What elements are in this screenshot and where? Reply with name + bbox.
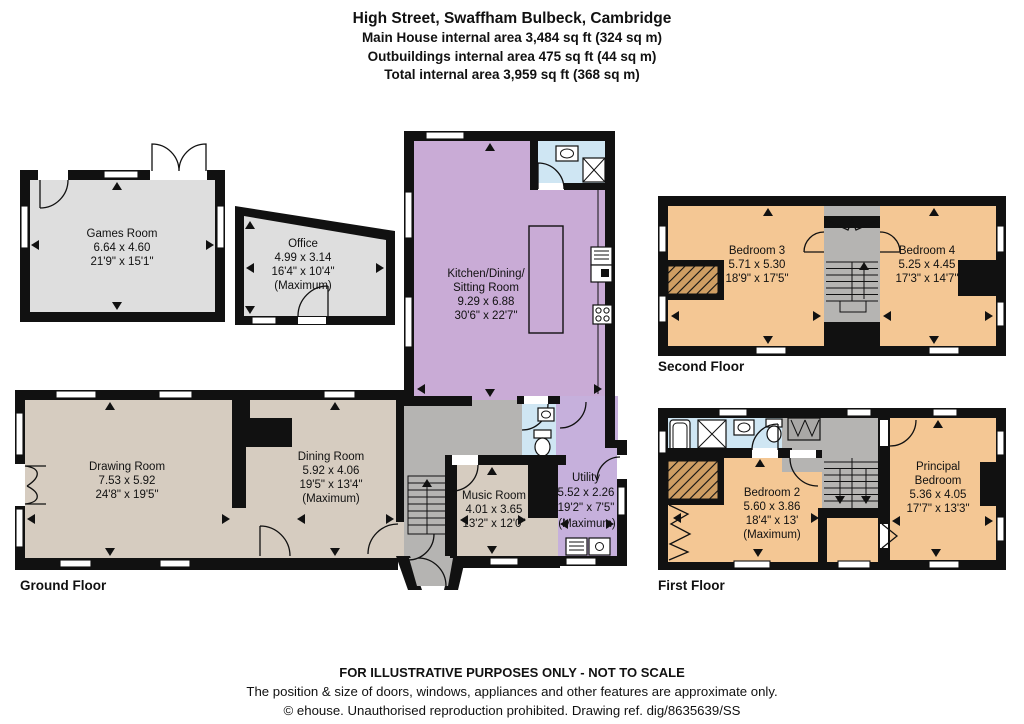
kitchen-metric: 9.29 x 6.88 [458,296,515,308]
double-door-arc [152,144,206,171]
floorplan-page: High Street, Swaffham Bulbeck, Cambridge… [0,0,1024,724]
bedroom2-note: (Maximum) [743,529,801,541]
drawing-room-label: Drawing Room [89,461,165,473]
copyright-text: © ehouse. Unauthorised reproduction proh… [0,701,1024,720]
music-room-label: Music Room [462,490,526,502]
principal-label-2: Bedroom [915,475,962,487]
sink-icon [538,408,554,421]
hob-icon [593,305,612,324]
office-imperial: 16'4" x 10'4" [271,266,334,278]
office-metric: 4.99 x 3.14 [275,252,333,264]
disclaimer-title: FOR ILLUSTRATIVE PURPOSES ONLY - NOT TO … [0,663,1024,682]
kitchen-imperial: 30'6" x 22'7" [454,310,517,322]
toilet-icon [766,419,782,442]
dining-room-note: (Maximum) [302,493,360,505]
bedroom3-metric: 5.71 x 5.30 [729,259,786,271]
office-label: Office [288,238,318,250]
utility-label: Utility [572,472,600,484]
dining-room-metric: 5.92 x 4.06 [303,465,360,477]
games-room-imperial: 21'9" x 15'1" [90,256,153,268]
games-room-metric: 6.64 x 4.60 [94,242,151,254]
principal-imperial: 17'7" x 13'3" [906,503,969,515]
bedroom3-label: Bedroom 3 [729,245,785,257]
wardrobe-icon [788,418,820,440]
bedroom3-imperial: 18'9" x 17'5" [725,273,788,285]
music-room-metric: 4.01 x 3.65 [466,504,523,516]
games-room-label: Games Room [87,228,158,240]
drawing-room-imperial: 24'8" x 19'5" [95,489,158,501]
sink-icon [734,420,754,435]
kitchen-label-1: Kitchen/Dining/ [447,268,525,280]
second-floor-label: Second Floor [658,359,745,374]
ground-floor-label: Ground Floor [20,578,107,593]
office-note: (Maximum) [274,280,332,292]
oven-icon [591,247,612,282]
shower-icon [698,420,726,448]
bedroom4-metric: 5.25 x 4.45 [899,259,956,271]
shower-icon [583,158,605,182]
footer-block: FOR ILLUSTRATIVE PURPOSES ONLY - NOT TO … [0,663,1024,720]
dining-room-imperial: 19'5" x 13'4" [299,479,362,491]
music-room-imperial: 13'2" x 12'0" [462,518,525,530]
ground-floor-center: Music Room 4.01 x 3.65 13'2" x 12'0" Uti… [396,396,627,590]
sink-icon [556,146,578,161]
chimney-hatch [668,266,718,294]
games-room: Games Room 6.64 x 4.60 21'9" x 15'1" [20,144,225,322]
kitchen-dining-sitting-room: Kitchen/Dining/ Sitting Room 9.29 x 6.88… [404,131,615,410]
disclaimer-text: The position & size of doors, windows, a… [0,682,1024,701]
dining-room-label: Dining Room [298,451,364,463]
kitchen-island [529,226,563,333]
utility-note: (Maximum) [558,518,616,530]
chimney-hatch [668,461,718,499]
bedroom2-metric: 5.60 x 3.86 [744,501,801,513]
first-floor-plan: Bedroom 2 5.60 x 3.86 18'4" x 13' (Maxim… [658,408,1006,570]
second-floor-plan: Bedroom 3 5.71 x 5.30 18'9" x 17'5" Bedr… [658,196,1006,356]
office: Office 4.99 x 3.14 16'4" x 10'4" (Maximu… [235,206,395,325]
utility-metric: 5.52 x 2.26 [558,487,615,499]
principal-metric: 5.36 x 4.05 [910,489,967,501]
toilet-icon [534,430,551,456]
bedroom4-imperial: 17'3" x 14'7" [895,273,958,285]
utility-imperial: 19'2" x 7'5" [558,502,615,514]
bedroom4-label: Bedroom 4 [899,245,956,257]
first-floor-label: First Floor [658,578,725,593]
floorplan-drawing: Games Room 6.64 x 4.60 21'9" x 15'1" Off… [0,0,1024,724]
principal-label-1: Principal [916,461,960,473]
bedroom2-label: Bedroom 2 [744,487,800,499]
bedroom2-imperial: 18'4" x 13' [746,515,799,527]
kitchen-label-2: Sitting Room [453,282,519,294]
hallway [404,400,522,458]
drawing-room-metric: 7.53 x 5.92 [99,475,156,487]
